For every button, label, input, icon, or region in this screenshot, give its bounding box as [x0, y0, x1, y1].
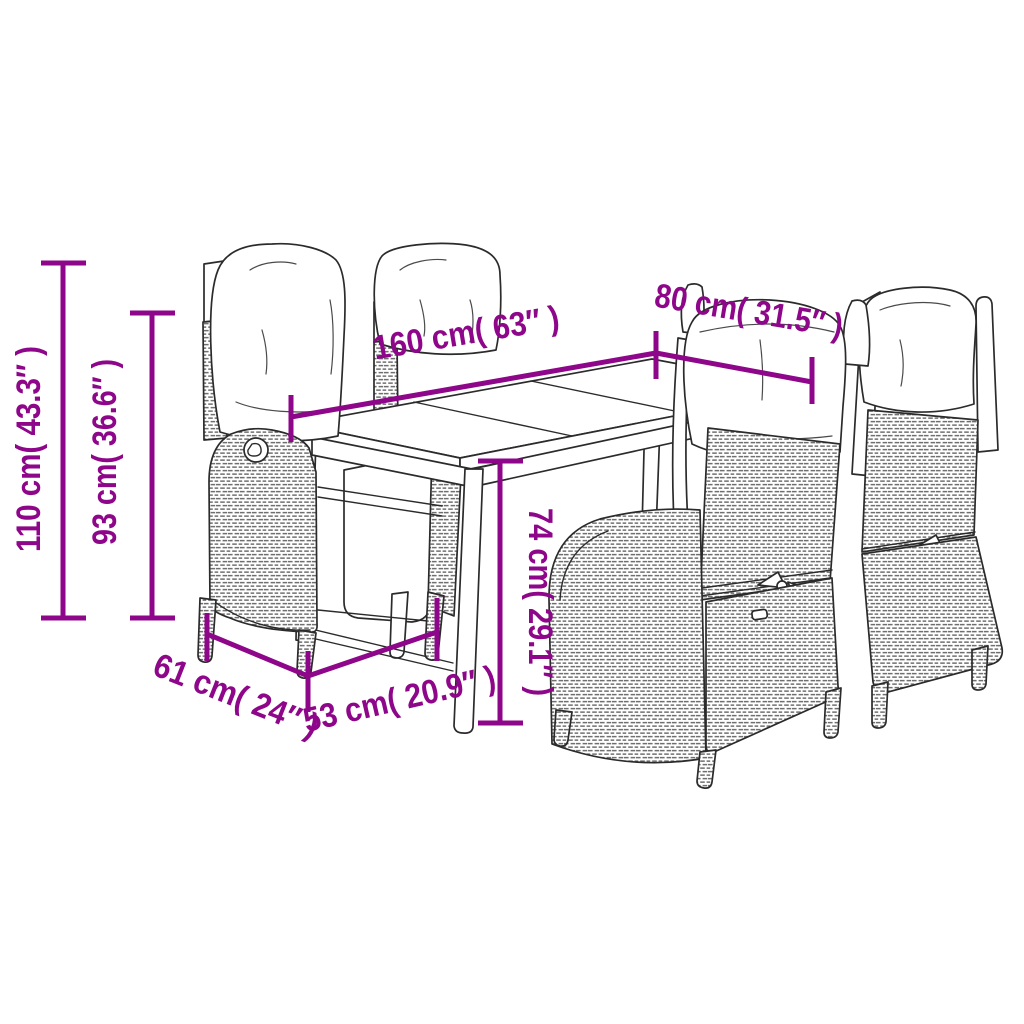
dim-line — [130, 313, 175, 618]
backrest-wicker-panel — [700, 428, 840, 600]
dim-label-backrest-height: 93 cm( 36.6″ ) — [86, 359, 124, 545]
chair-leg — [872, 682, 888, 728]
chair-frame-post — [844, 300, 870, 366]
chair-leg — [972, 646, 988, 690]
dim-backrest-height: 93 cm( 36.6″ ) — [86, 313, 175, 618]
dim-label-table-height: 74 cm( 29.1″ ) — [521, 508, 559, 696]
chair-leg-right — [824, 688, 841, 738]
armrest-wicker-dome — [549, 509, 706, 763]
dimension-diagram: 110 cm( 43.3″ ) 93 cm( 36.6″ ) 160 cm( 6… — [0, 0, 1024, 1024]
seat-strap-slot — [752, 609, 768, 620]
backrest-cushion — [859, 287, 976, 412]
backrest-wicker-panel — [862, 410, 978, 552]
dim-total-height: 110 cm( 43.3″ ) — [10, 263, 86, 618]
chair-leg-front — [697, 750, 716, 788]
chair-frame-post — [976, 297, 998, 452]
right-back-chair — [852, 287, 1002, 728]
seat-front-wicker — [706, 578, 838, 753]
dim-label-total-height: 110 cm( 43.3″ ) — [10, 346, 48, 552]
diagram-canvas: 110 cm( 43.3″ ) 93 cm( 36.6″ ) 160 cm( 6… — [0, 0, 1024, 1024]
right-front-chair — [549, 284, 870, 788]
